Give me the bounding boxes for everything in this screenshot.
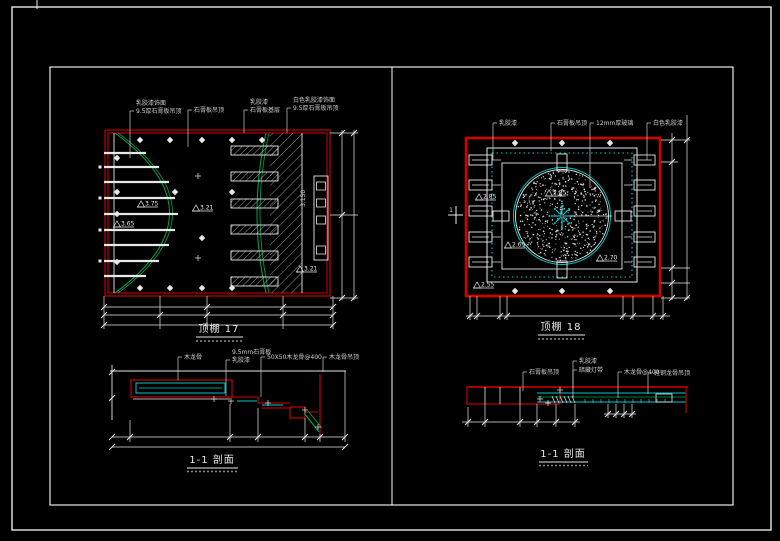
diamond-marker [137, 285, 143, 291]
cad-sheet: 3.150 顶棚 17 1 顶棚 18 [0, 0, 780, 541]
callout-label: 9.5厚石膏板吊顶 [293, 104, 339, 112]
diamond-marker [167, 285, 173, 291]
callout-label: 9.5厚石膏板吊顶 [136, 107, 182, 115]
callout-label: 石膏板吊顶 [557, 119, 587, 127]
elevation-value: 3.21 [304, 266, 318, 273]
elevation-value: 2.65 [512, 242, 526, 249]
elevation-triangle [476, 194, 483, 200]
callout-label: 9.5mm石膏板 [232, 348, 271, 356]
elevation-markers: 3.753.653.213.212.852.852.652.702.55 [113, 190, 618, 289]
diamond-marker [199, 137, 205, 143]
callout-label: 12mm厚玻璃 [596, 119, 633, 127]
callout-label: 乳胶漆 [232, 356, 250, 364]
diamond-marker [512, 288, 518, 294]
sheet-borders [12, 0, 771, 530]
callout-label: 乳胶漆饰面 [136, 99, 166, 107]
callout-label: 木龙骨 [184, 353, 202, 361]
diamond-marker [172, 189, 178, 195]
callout-label: 乳胶漆 [250, 98, 268, 106]
louver-bar [231, 251, 278, 260]
diamond-marker [607, 140, 613, 146]
diamond-marker [137, 137, 143, 143]
elevation-triangle [546, 190, 553, 196]
plan-left: 3.150 顶棚 17 [99, 130, 331, 341]
diamond-marker [559, 288, 565, 294]
louver-bar [231, 172, 278, 181]
section-right: 1-1 剖面 [211, 387, 688, 466]
slat-end-dot [99, 197, 102, 200]
diamond-marker [199, 285, 205, 291]
ceiling-hatch-band [270, 133, 302, 293]
section-left-title: 1-1 剖面 [189, 453, 235, 466]
callout-label: 轻钢龙骨吊顶 [654, 369, 690, 377]
slat-end-dot [99, 260, 102, 263]
vertical-dim-label: 3.150 [300, 190, 307, 207]
plan-left-title: 顶棚 17 [199, 322, 240, 335]
elevation-triangle [505, 242, 512, 248]
elevation-triangle [193, 205, 200, 211]
elevation-triangle [138, 201, 145, 207]
plan-right: 1 顶棚 18 [448, 138, 660, 339]
slat-end-dot [99, 166, 102, 169]
diamond-marker [114, 211, 120, 217]
diamond-marker [559, 140, 565, 146]
elevation-value: 2.85 [553, 190, 567, 197]
callout-label: 乳胶漆 [499, 119, 517, 127]
louver-bar [231, 146, 278, 155]
diamond-marker [512, 140, 518, 146]
plan-right-title: 顶棚 18 [541, 320, 582, 333]
louver-bar [231, 225, 278, 234]
callout-label: 石膏板吊顶 [194, 106, 224, 114]
section-marker-label: 1 [449, 206, 453, 214]
section-right-title: 1-1 剖面 [540, 447, 586, 460]
callout-label: 木龙骨吊顶 [329, 353, 359, 361]
louver-bar [231, 199, 278, 208]
cad-drawing: 3.150 顶棚 17 1 顶棚 18 [0, 0, 780, 541]
elevation-triangle [114, 221, 121, 227]
slat-end-dot [99, 229, 102, 232]
callout-label: 乳胶漆 [579, 357, 597, 365]
callout-label: 石膏板吊顶 [529, 368, 559, 376]
callout-label: 暗藏灯带 [579, 366, 603, 374]
elevation-value: 3.65 [121, 221, 135, 228]
diamond-marker [114, 189, 120, 195]
section-left: 1-1 剖面 [110, 365, 346, 472]
diamond-marker [199, 235, 205, 241]
diamond-marker [167, 137, 173, 143]
callout-label: 50X50木龙骨@400 [267, 353, 322, 361]
section-cut-marker: 1 [448, 206, 463, 224]
elevation-triangle [597, 255, 604, 261]
callout-annotations: 乳胶漆饰面9.5厚石膏板吊顶石膏板吊顶乳胶漆石膏板基层白色乳胶漆饰面9.5厚石膏… [130, 96, 690, 398]
diamond-marker [229, 189, 235, 195]
elevation-value: 3.75 [145, 201, 159, 208]
elevation-value: 2.55 [481, 282, 495, 289]
callout-label: 石膏板基层 [250, 106, 280, 114]
elevation-value: 3.21 [200, 205, 214, 212]
elevation-triangle [474, 282, 481, 288]
elevation-value: 2.70 [604, 255, 618, 262]
legend-column [314, 176, 328, 260]
callout-label: 白色乳胶漆 [653, 119, 683, 127]
louver-bar [231, 277, 278, 286]
diamond-marker [229, 137, 235, 143]
elevation-value: 2.85 [483, 194, 497, 201]
diamond-marker [114, 259, 120, 265]
diamond-marker [607, 288, 613, 294]
diamond-marker [114, 155, 120, 161]
callout-label: 白色乳胶漆饰面 [293, 96, 335, 104]
